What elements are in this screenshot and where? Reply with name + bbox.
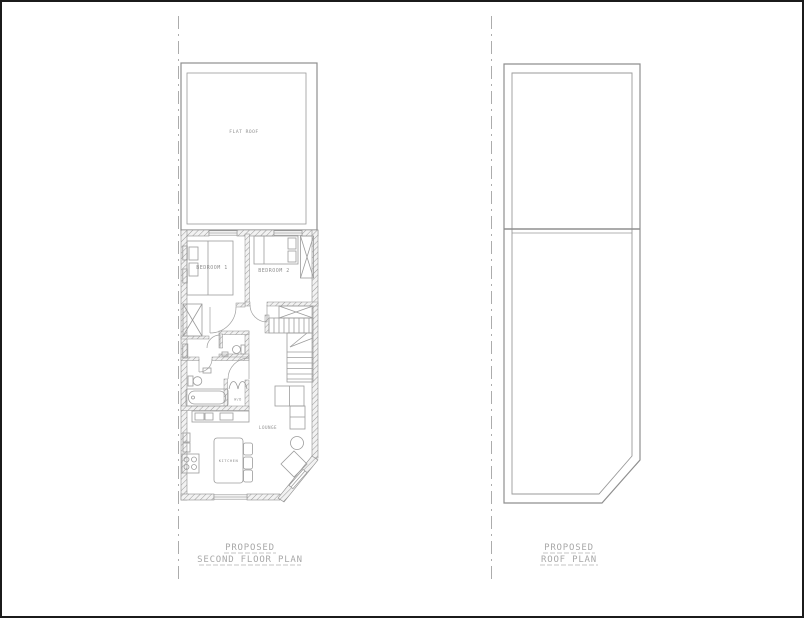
wall <box>245 234 250 304</box>
pillow <box>189 247 198 260</box>
washer-dryer-label: W/D <box>234 398 242 402</box>
plans-canvas: FLAT ROOF <box>2 2 802 616</box>
drawing-sheet: FLAT ROOF <box>0 0 804 618</box>
roof-outline-inner <box>512 73 632 494</box>
stair-void <box>279 306 313 318</box>
bathroom <box>183 344 228 406</box>
flat-roof-area: FLAT ROOF <box>181 63 317 230</box>
pillow <box>288 238 296 249</box>
door <box>250 305 267 322</box>
flat-roof-label: FLAT ROOF <box>229 129 258 135</box>
interior-walls <box>181 234 318 411</box>
roof-plan-title-line2: ROOF PLAN <box>541 555 597 565</box>
bathtub <box>186 389 228 406</box>
wall <box>267 302 318 306</box>
pillow <box>288 251 296 262</box>
appliance <box>220 413 233 420</box>
roof-outline-outer <box>504 64 640 503</box>
sink-bowl <box>195 413 204 420</box>
toilet-icon <box>193 377 202 386</box>
bed <box>254 236 298 264</box>
cupboard-door <box>229 382 238 390</box>
wall <box>219 331 249 335</box>
lounge: LOUNGE <box>259 386 307 477</box>
wall <box>181 494 214 500</box>
roof-plan-title: PROPOSED ROOF PLAN <box>540 543 598 565</box>
roof-plan-title-line1: PROPOSED <box>544 543 594 553</box>
wall <box>181 406 249 411</box>
stool <box>244 443 253 455</box>
basin <box>203 368 211 373</box>
second-floor-plan: FLAT ROOF <box>179 16 319 580</box>
wall <box>181 357 199 361</box>
wardrobe <box>301 236 314 278</box>
sofa <box>290 406 305 429</box>
roof-plan-drawing: PROPOSED ROOF PLAN <box>492 16 641 580</box>
side-table <box>291 437 304 450</box>
window <box>274 231 302 235</box>
wall <box>236 303 245 307</box>
bedroom-2-label: BEDROOM 2 <box>258 268 290 274</box>
flat-roof-inner-outline <box>187 73 306 224</box>
lounge-label: LOUNGE <box>259 425 277 430</box>
wall <box>181 336 209 339</box>
wall <box>247 494 280 500</box>
bedroom-1: BEDROOM 1 <box>183 241 233 336</box>
bedroom-1-label: BEDROOM 1 <box>196 265 228 271</box>
wall <box>245 331 249 357</box>
kitchen: KITCHEN <box>182 411 253 483</box>
door <box>210 307 236 333</box>
bedroom-2: BEDROOM 2 <box>254 236 314 278</box>
sink-bowl <box>205 413 213 420</box>
stool <box>244 470 253 482</box>
toilet-cistern <box>188 376 193 386</box>
wall <box>237 230 274 236</box>
wall <box>219 334 223 348</box>
window <box>289 469 307 488</box>
wall <box>245 302 250 306</box>
window <box>209 231 237 235</box>
door <box>199 359 212 372</box>
staircase <box>269 306 313 382</box>
toilet-icon <box>233 346 241 354</box>
stool <box>244 457 253 469</box>
flat-roof-outline <box>181 63 317 230</box>
wall <box>224 379 228 407</box>
toilet-cistern <box>241 345 245 354</box>
kitchen-label: KITCHEN <box>219 458 239 463</box>
washer-dryer-cupboard: W/D <box>229 382 247 402</box>
floor-plan-title: PROPOSED SECOND FLOOR PLAN <box>197 543 303 565</box>
floor-plan-title-line1: PROPOSED <box>225 543 275 553</box>
window <box>214 495 247 499</box>
door <box>228 358 249 379</box>
floor-plan-title-line2: SECOND FLOOR PLAN <box>197 555 303 565</box>
